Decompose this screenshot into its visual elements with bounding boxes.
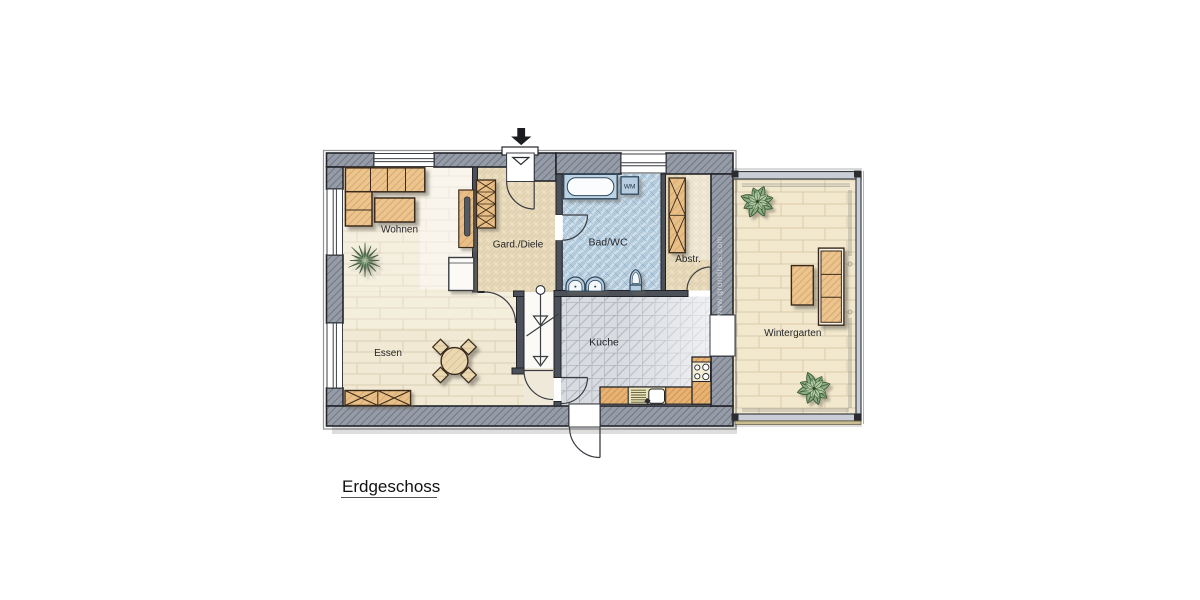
svg-text:Wohnen: Wohnen	[381, 225, 418, 236]
svg-text:WM: WM	[624, 183, 636, 190]
svg-text:Gard./Diele: Gard./Diele	[493, 240, 544, 251]
svg-text:Erdgeschoss: Erdgeschoss	[342, 477, 440, 496]
svg-text:Essen: Essen	[374, 348, 402, 359]
svg-text:Bad/WC: Bad/WC	[588, 237, 628, 249]
svg-text:www.grundriss.com: www.grundriss.com	[714, 236, 724, 319]
svg-text:Abstr.: Abstr.	[675, 254, 701, 265]
svg-text:Küche: Küche	[589, 337, 619, 349]
svg-text:Wintergarten: Wintergarten	[764, 328, 821, 339]
